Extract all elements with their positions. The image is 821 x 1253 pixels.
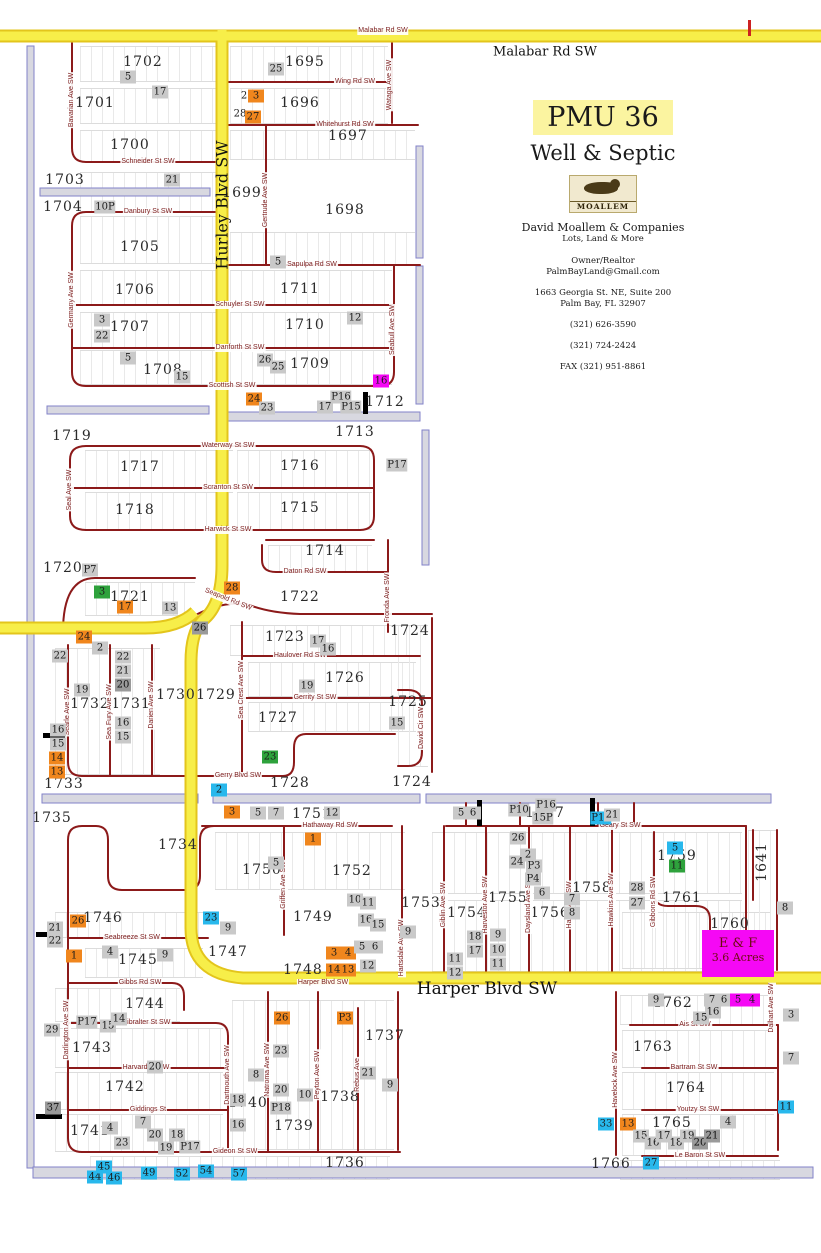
street-label-bavarian-ave-sw: Bavarian Ave SW bbox=[68, 72, 76, 128]
street-label-danforth-st-sw: Danforth St SW bbox=[215, 344, 266, 352]
lot-marker-gr-11: 11 bbox=[447, 953, 463, 966]
lot-marker-gr-13: 13 bbox=[162, 602, 178, 615]
lot-marker-gr-5: 5 bbox=[270, 256, 286, 269]
lot-marker-o-26: 26 bbox=[274, 1012, 290, 1025]
lot-marker-gr-22: 22 bbox=[94, 330, 110, 343]
street-label-danbury-st-sw: Danbury St SW bbox=[123, 208, 173, 216]
block-label-1727: 1727 bbox=[258, 710, 298, 726]
lot-marker-gr-4: 4 bbox=[102, 1122, 118, 1135]
street-label-hawkins-ave-sw: Hawkins Ave SW bbox=[608, 872, 616, 927]
block-label-1711: 1711 bbox=[280, 281, 320, 297]
block-label-1730: 1730 bbox=[156, 687, 196, 703]
lot-marker-o-24: 24 bbox=[76, 631, 92, 644]
block-label-1702: 1702 bbox=[123, 54, 163, 70]
block-label-1737: 1737 bbox=[365, 1028, 405, 1044]
lot-marker-gr-20: 20 bbox=[147, 1061, 163, 1074]
block-label-1709: 1709 bbox=[290, 356, 330, 372]
street-label-gerry-blvd-sw: Gerry Blvd SW bbox=[214, 772, 262, 780]
moallem-logo: MOALLEM bbox=[569, 175, 637, 213]
lot-marker-gr-17: 17 bbox=[467, 945, 483, 958]
lot-marker-gr-17: 17 bbox=[317, 401, 333, 414]
lot-marker-gr-11: 11 bbox=[490, 958, 506, 971]
block-label-1748: 1748 bbox=[283, 962, 323, 978]
block-label-1703: 1703 bbox=[45, 172, 85, 188]
street-label-scottish-st-sw: Scottish St SW bbox=[208, 382, 257, 390]
street-label-gibbons-rd-sw: Gibbons Rd SW bbox=[650, 876, 658, 928]
street-label-schuyler-st-sw: Schuyler St SW bbox=[214, 301, 265, 309]
street-label-harvestor-ave-sw: Harvestor Ave SW bbox=[482, 875, 490, 934]
street-label-harper-blvd-sw: Harper Blvd SW bbox=[297, 979, 349, 987]
plat-map-page: 1702169517011696169717001703169917041698… bbox=[0, 0, 821, 1253]
fax: FAX (321) 951-8861 bbox=[500, 362, 706, 373]
lot-marker-o-27: 27 bbox=[245, 111, 261, 124]
block-label-1712: 1712 bbox=[365, 394, 405, 410]
lot-marker-gr-8: 8 bbox=[777, 902, 793, 915]
lot-marker-gr-24: 24 bbox=[509, 856, 525, 869]
lot-marker-gr-4: 4 bbox=[102, 946, 118, 959]
street-label-sea-crest-ave-sw: Sea Crest Ave SW bbox=[238, 660, 246, 720]
title-block: PMU 36 Well & Septic MOALLEM David Moall… bbox=[500, 100, 706, 373]
lot-marker-gr-10: 10 bbox=[297, 1089, 313, 1102]
street-label-malabar-rd-sw: Malabar Rd SW bbox=[357, 27, 408, 35]
block-label-1697: 1697 bbox=[328, 128, 368, 144]
lot-marker-y-11: 11 bbox=[778, 1101, 794, 1114]
street-label-scranton-st-sw: Scranton St SW bbox=[202, 484, 254, 492]
logo-text: MOALLEM bbox=[570, 201, 636, 211]
lot-marker-gr-22: 22 bbox=[115, 651, 131, 664]
lot-marker-gr-18: 18 bbox=[230, 1094, 246, 1107]
block-label-1747: 1747 bbox=[208, 944, 248, 960]
block-label-1700: 1700 bbox=[110, 137, 150, 153]
block-label-1717: 1717 bbox=[120, 459, 160, 475]
lot-marker-gr-22: 22 bbox=[52, 650, 68, 663]
block-label-1701: 1701 bbox=[75, 95, 115, 111]
street-label-havelock-ave-sw: Havelock Ave SW bbox=[612, 1051, 620, 1109]
block-label-1641: 1641 bbox=[754, 842, 770, 882]
lot-marker-gr-23: 23 bbox=[259, 402, 275, 415]
lot-marker-gr-21: 21 bbox=[164, 174, 180, 187]
block-label-1734: 1734 bbox=[158, 837, 198, 853]
lot-marker-gr-12: 12 bbox=[324, 807, 340, 820]
street-label-darlington-ave-sw: Darlington Ave SW bbox=[63, 1000, 71, 1061]
lot-marker-gr-21: 21 bbox=[47, 922, 63, 935]
block-label-1729: 1729 bbox=[196, 687, 236, 703]
street-label-fronda-ave-sw: Fronda Ave SW bbox=[384, 573, 392, 624]
street-label-gideon-st-sw: Gideon St SW bbox=[212, 1148, 258, 1156]
street-label-whitehurst-rd-sw: Whitehurst Rd SW bbox=[315, 121, 375, 129]
lot-marker-gr-4: 4 bbox=[720, 1116, 736, 1129]
lot-marker-gr-27: 27 bbox=[629, 897, 645, 910]
block-label-1723: 1723 bbox=[265, 629, 305, 645]
lot-marker-gr-5: 5 bbox=[250, 807, 266, 820]
lot-marker-o-13: 13 bbox=[340, 964, 356, 977]
lot-marker-gr-6: 6 bbox=[534, 887, 550, 900]
street-label-schneider-st-sw: Schneider St SW bbox=[120, 158, 175, 166]
lot-marker-gr-2: 2 bbox=[92, 642, 108, 655]
lot-marker-y-49: 49 bbox=[141, 1167, 157, 1180]
lot-marker-o-p3: P3 bbox=[337, 1012, 353, 1025]
major-road-label-harper-blvd-sw: Harper Blvd SW bbox=[417, 979, 558, 999]
lot-marker-y-57: 57 bbox=[231, 1168, 247, 1181]
street-label-natroma-ave-sw: Natroma Ave SW bbox=[264, 1042, 272, 1098]
lot-marker-gr-5: 5 bbox=[120, 352, 136, 365]
block-label-1715: 1715 bbox=[280, 500, 320, 516]
block-label-1719: 1719 bbox=[52, 428, 92, 444]
lot-marker-gr-10: 10 bbox=[490, 944, 506, 957]
street-label-haulover-rd-sw: Haulover Rd SW bbox=[273, 652, 327, 660]
lot-marker-y-46: 46 bbox=[106, 1172, 122, 1185]
block-label-1722: 1722 bbox=[280, 589, 320, 605]
lot-marker-m-4: 4 bbox=[744, 994, 760, 1007]
company-name: David Moallem & Companies bbox=[500, 221, 706, 234]
street-label-david-cir-sw: David Cir SW bbox=[418, 706, 426, 750]
block-label-1743: 1743 bbox=[72, 1040, 112, 1056]
street-label-peyton-ave-sw: Peyton Ave SW bbox=[314, 1050, 322, 1101]
lot-marker-gr-16: 16 bbox=[50, 724, 66, 737]
lot-marker-gr-15: 15 bbox=[115, 731, 131, 744]
block-label-1704: 1704 bbox=[43, 199, 83, 215]
block-label-1766: 1766 bbox=[591, 1156, 631, 1172]
lot-marker-gr-15: 15 bbox=[389, 717, 405, 730]
lot-marker-gr-26: 26 bbox=[510, 832, 526, 845]
street-label-youtzy-st-sw: Youtzy St SW bbox=[676, 1106, 721, 1114]
lot-marker-gr-29: 29 bbox=[44, 1024, 60, 1037]
lot-marker-gr-5: 5 bbox=[120, 71, 136, 84]
lot-marker-gr-9: 9 bbox=[220, 922, 236, 935]
lot-marker-gr-20: 20 bbox=[273, 1084, 289, 1097]
street-label-wataga-ave-sw: Wataga Ave SW bbox=[386, 59, 394, 112]
lot-marker-gr-15: 15 bbox=[693, 1012, 709, 1025]
lot-marker-y-33: 33 bbox=[598, 1118, 614, 1131]
malabar-mile-tick bbox=[748, 20, 751, 36]
block-label-1695: 1695 bbox=[285, 54, 325, 70]
block-label-1696: 1696 bbox=[280, 95, 320, 111]
lot-marker-o-3: 3 bbox=[248, 90, 264, 103]
lot-marker-gr-6: 6 bbox=[367, 941, 383, 954]
street-label-giddings-st: Giddings St bbox=[129, 1106, 167, 1114]
street-label-germany-ave-sw: Germany Ave SW bbox=[68, 271, 76, 329]
block-label-1707: 1707 bbox=[110, 319, 150, 335]
lot-marker-y-52: 52 bbox=[174, 1168, 190, 1181]
lot-marker-gr-7: 7 bbox=[564, 893, 580, 906]
block-label-1706: 1706 bbox=[115, 282, 155, 298]
lot-marker-gr-15: 15 bbox=[174, 371, 190, 384]
lot-marker-y-5: 5 bbox=[667, 842, 683, 855]
block-label-1718: 1718 bbox=[115, 502, 155, 518]
block-label-1713: 1713 bbox=[335, 424, 375, 440]
lot-marker-o-1: 1 bbox=[305, 833, 321, 846]
lot-marker-g-23: 23 bbox=[262, 751, 278, 764]
lot-marker-gr-19: 19 bbox=[158, 1142, 174, 1155]
street-label-waterway-st-sw: Waterway St SW bbox=[201, 442, 256, 450]
lot-marker-y-23: 23 bbox=[203, 912, 219, 925]
lot-marker-gr-11: 11 bbox=[360, 897, 376, 910]
lot-marker-gr-3: 3 bbox=[94, 314, 110, 327]
block-label-1754: 1754 bbox=[447, 905, 487, 921]
lot-marker-gr-9: 9 bbox=[157, 949, 173, 962]
street-label-seabreeze-st-sw: Seabreeze St SW bbox=[103, 934, 161, 942]
block-label-1726: 1726 bbox=[325, 670, 365, 686]
lot-marker-gr-14: 14 bbox=[111, 1013, 127, 1026]
lot-marker-gr-9: 9 bbox=[382, 1079, 398, 1092]
company-tagline: Lots, Land & More bbox=[500, 234, 706, 244]
block-label-1724: 1724 bbox=[390, 623, 430, 639]
major-road-label-malabar-rd-sw: Malabar Rd SW bbox=[493, 45, 597, 60]
street-label-gibbs-rd-sw: Gibbs Rd SW bbox=[118, 979, 162, 987]
block-label-1745: 1745 bbox=[118, 952, 158, 968]
lot-marker-o-28: 28 bbox=[224, 582, 240, 595]
street-label-hathaway-rd-sw: Hathaway Rd SW bbox=[301, 822, 358, 830]
block-label-1710: 1710 bbox=[285, 317, 325, 333]
address-line1: 1663 Georgia St. NE, Suite 200 bbox=[500, 288, 706, 299]
lot-marker-o-13: 13 bbox=[49, 766, 65, 779]
lot-marker-gr-28: 28 bbox=[629, 882, 645, 895]
ef-acreage-parcel: E & F 3.6 Acres bbox=[702, 930, 774, 977]
street-label-giblin-ave-sw: Giblin Ave SW bbox=[440, 882, 448, 929]
lot-marker-d-37: 37 bbox=[45, 1102, 61, 1115]
lot-marker-gr-7: 7 bbox=[783, 1052, 799, 1065]
block-label-1728: 1728 bbox=[270, 775, 310, 791]
block-label-1735: 1735 bbox=[32, 810, 72, 826]
lot-marker-gr-15: 15 bbox=[50, 738, 66, 751]
lot-marker-gr-18: 18 bbox=[467, 931, 483, 944]
lot-marker-gr-12: 12 bbox=[347, 312, 363, 325]
lot-marker-y-54: 54 bbox=[198, 1165, 214, 1178]
phone-2: (321) 724-2424 bbox=[500, 341, 706, 352]
lot-marker-o-14: 14 bbox=[49, 752, 65, 765]
lot-marker-gr-p7: P7 bbox=[82, 564, 98, 577]
lot-marker-y-27: 27 bbox=[643, 1157, 659, 1170]
lot-marker-gr-23: 23 bbox=[273, 1045, 289, 1058]
street-label-gerrity-st-sw: Gerrity St SW bbox=[293, 694, 338, 702]
lot-marker-gr-8: 8 bbox=[248, 1069, 264, 1082]
lot-marker-gr-3: 3 bbox=[783, 1009, 799, 1022]
block-label-1749: 1749 bbox=[293, 909, 333, 925]
lot-marker-gr-p17: P17 bbox=[76, 1016, 97, 1029]
lot-marker-gr-p3: P3 bbox=[526, 860, 542, 873]
street-label-gertrude-ave-sw: Gertrude Ave SW bbox=[262, 172, 270, 228]
block-label-1755: 1755 bbox=[488, 890, 528, 906]
block-label-1753: 1753 bbox=[401, 895, 441, 911]
lot-marker-gr-9: 9 bbox=[648, 994, 664, 1007]
street-label-darien-ave-sw: Darien Ave SW bbox=[148, 680, 156, 729]
lot-marker-o-3: 3 bbox=[224, 806, 240, 819]
lot-marker-gr-10p: 10P bbox=[94, 201, 115, 214]
street-label-harvard-st-sw: Harvard St SW bbox=[122, 1064, 171, 1072]
lot-marker-gr-15p: 15P bbox=[532, 812, 553, 825]
block-label-1731: 1731 bbox=[111, 696, 151, 712]
pmu-title: PMU 36 bbox=[533, 100, 673, 135]
lot-marker-m-16: 16 bbox=[373, 375, 389, 388]
lot-marker-gr-p17: P17 bbox=[386, 459, 407, 472]
street-label-sapulpa-rd-sw: Sapulpa Rd SW bbox=[286, 261, 338, 269]
lot-marker-gr-21: 21 bbox=[115, 665, 131, 678]
lot-marker-gr-16: 16 bbox=[230, 1119, 246, 1132]
block-label-1714: 1714 bbox=[305, 543, 345, 559]
lot-marker-gr-7: 7 bbox=[135, 1116, 151, 1129]
lot-marker-gr-23: 23 bbox=[114, 1137, 130, 1150]
block-label-1752: 1752 bbox=[332, 863, 372, 879]
lot-marker-gr-12: 12 bbox=[360, 960, 376, 973]
lot-marker-gr-20: 20 bbox=[147, 1129, 163, 1142]
block-label-1742: 1742 bbox=[105, 1079, 145, 1095]
street-label-daton-rd-sw: Daton Rd SW bbox=[283, 568, 328, 576]
block-label-1764: 1764 bbox=[666, 1080, 706, 1096]
lot-marker-d-26: 26 bbox=[192, 622, 208, 635]
street-label-sea-fury-ave-sw: Sea Fury Ave SW bbox=[106, 683, 114, 740]
lot-marker-gr-5: 5 bbox=[268, 857, 284, 870]
block-label-1739: 1739 bbox=[274, 1118, 314, 1134]
lot-marker-gr-21: 21 bbox=[360, 1067, 376, 1080]
block-label-1732: 1732 bbox=[70, 696, 110, 712]
lot-marker-o-1: 1 bbox=[66, 950, 82, 963]
lot-marker-gr-16: 16 bbox=[320, 643, 336, 656]
block-label-1720: 1720 bbox=[43, 560, 83, 576]
block-label-1698: 1698 bbox=[325, 202, 365, 218]
lot-marker-gr-15: 15 bbox=[370, 919, 386, 932]
realtor-role: Owner/Realtor bbox=[500, 256, 706, 267]
lot-marker-gr-12: 12 bbox=[447, 967, 463, 980]
lot-marker-gr-21: 21 bbox=[604, 809, 620, 822]
lot-marker-g-11: 11 bbox=[669, 860, 685, 873]
ef-parcel-name: E & F bbox=[702, 936, 774, 951]
lot-marker-d-20: 20 bbox=[115, 679, 131, 692]
lot-marker-gr-p17: P17 bbox=[179, 1141, 200, 1154]
street-label-harwick-st-sw: Harwick St SW bbox=[204, 526, 253, 534]
map-subtitle: Well & Septic bbox=[500, 141, 706, 165]
lot-marker-o-26: 26 bbox=[70, 915, 86, 928]
lot-marker-gr-17: 17 bbox=[152, 86, 168, 99]
street-label-bartram-st-sw: Bartram St SW bbox=[670, 1064, 719, 1072]
lot-marker-gr-p18: P18 bbox=[270, 1102, 291, 1115]
street-label-gibralter-st-sw: Gibralter St SW bbox=[121, 1019, 172, 1027]
lot-marker-gr-6: 6 bbox=[465, 807, 481, 820]
major-road-label-hurley-blvd-sw: Hurley Blvd SW bbox=[213, 140, 232, 269]
block-label-1724: 1724 bbox=[392, 774, 432, 790]
street-label-dalhart-ave-sw: Dalhart Ave SW bbox=[768, 982, 776, 1033]
lot-marker-gr-9: 9 bbox=[400, 926, 416, 939]
lot-marker-gr-19: 19 bbox=[299, 680, 315, 693]
street-label-le-baron-st-sw: Le Baron St SW bbox=[674, 1152, 726, 1160]
lot-marker-gr-p4: P4 bbox=[525, 873, 541, 886]
lot-marker-y-2: 2 bbox=[211, 784, 227, 797]
lot-marker-d-21: 21 bbox=[704, 1130, 720, 1143]
phone-1: (321) 626-3590 bbox=[500, 320, 706, 331]
email[interactable]: PalmBayLand@Gmail.com bbox=[500, 267, 706, 278]
lot-marker-g-3: 3 bbox=[94, 586, 110, 599]
lot-marker-gr-16: 16 bbox=[115, 717, 131, 730]
street-label-seal-ave-sw: Seal Ave SW bbox=[66, 469, 74, 512]
lot-marker-gr-25: 25 bbox=[270, 361, 286, 374]
block-label-1763: 1763 bbox=[633, 1039, 673, 1055]
lot-marker-gr-p10: P10 bbox=[508, 804, 529, 817]
street-label-wing-rd-sw: Wing Rd SW bbox=[334, 78, 376, 86]
block-label-1761: 1761 bbox=[662, 890, 702, 906]
lot-marker-gr-p15: P15 bbox=[340, 401, 361, 414]
block-label-1736: 1736 bbox=[325, 1155, 365, 1171]
lot-marker-gr-p16: P16 bbox=[535, 799, 556, 812]
lot-marker-gr-22: 22 bbox=[47, 935, 63, 948]
block-label-1746: 1746 bbox=[83, 910, 123, 926]
lot-marker-gr-19: 19 bbox=[74, 684, 90, 697]
lot-marker-gr-9: 9 bbox=[490, 929, 506, 942]
lot-marker-gr-25: 25 bbox=[268, 63, 284, 76]
lot-marker-gr-7: 7 bbox=[268, 807, 284, 820]
block-label-1744: 1744 bbox=[125, 996, 165, 1012]
block-label-1716: 1716 bbox=[280, 458, 320, 474]
ef-parcel-size: 3.6 Acres bbox=[702, 951, 774, 964]
street-label-seabull-ave-sw: Seabull Ave SW bbox=[389, 304, 397, 356]
block-label-1705: 1705 bbox=[120, 239, 160, 255]
lot-marker-o-17: 17 bbox=[117, 601, 133, 614]
address-line2: Palm Bay, FL 32907 bbox=[500, 299, 706, 310]
lot-marker-gr-8: 8 bbox=[564, 907, 580, 920]
